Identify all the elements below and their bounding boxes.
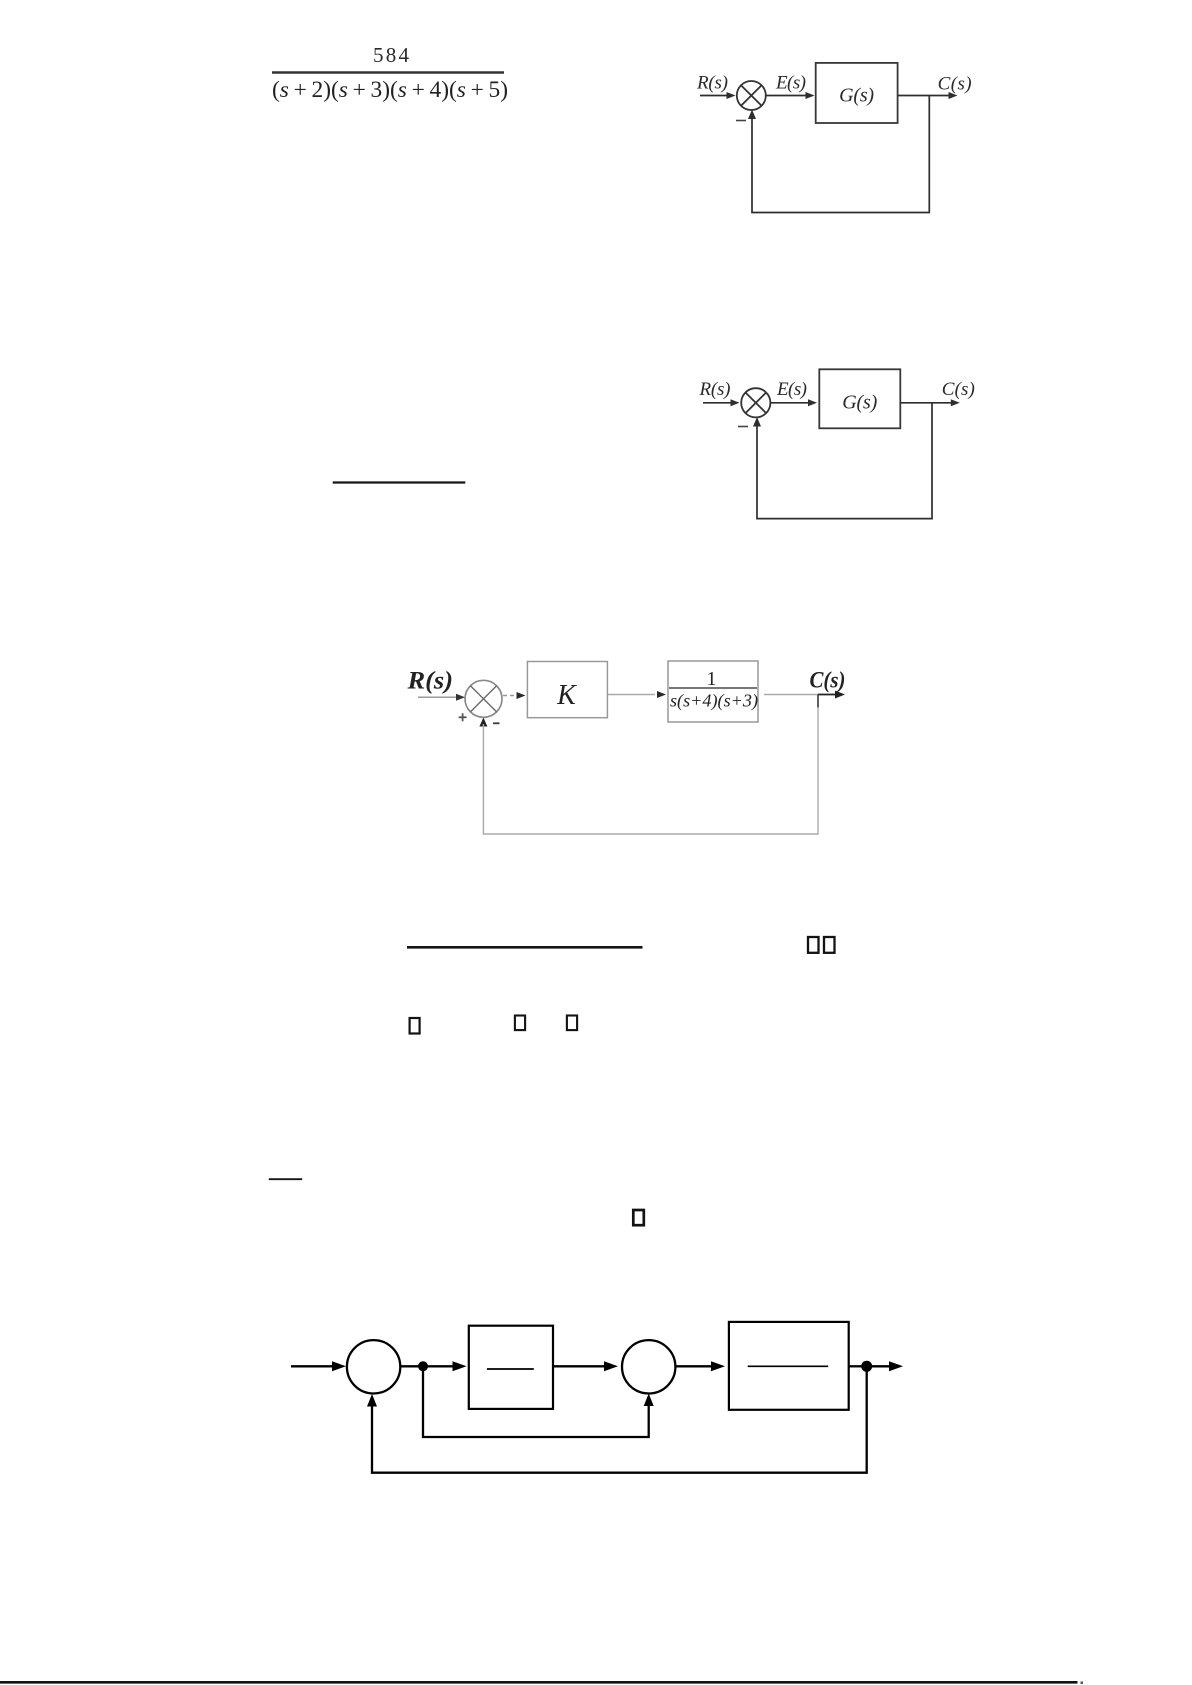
svg-text:C(s): C(s) (938, 74, 972, 95)
svg-text:C(s): C(s) (810, 668, 846, 693)
svg-text:E(s): E(s) (776, 379, 807, 400)
svg-text:R(s): R(s) (696, 73, 728, 94)
svg-text:K: K (556, 680, 577, 711)
svg-text:(s + 2)(s + 3)(s + 4)(s + 5): (s + 2)(s + 3)(s + 4)(s + 5) (272, 77, 508, 102)
svg-text:R(s): R(s) (699, 379, 731, 400)
svg-text:G(s): G(s) (839, 85, 874, 107)
svg-text:C(s): C(s) (942, 379, 975, 400)
svg-text:s(s+4)(s+3): s(s+4)(s+3) (670, 691, 758, 711)
svg-text:G(s): G(s) (842, 392, 877, 414)
svg-text:R(s): R(s) (406, 668, 453, 695)
svg-text:584: 584 (373, 43, 410, 67)
svg-text:E(s): E(s) (775, 73, 806, 94)
svg-text:1: 1 (707, 668, 717, 690)
